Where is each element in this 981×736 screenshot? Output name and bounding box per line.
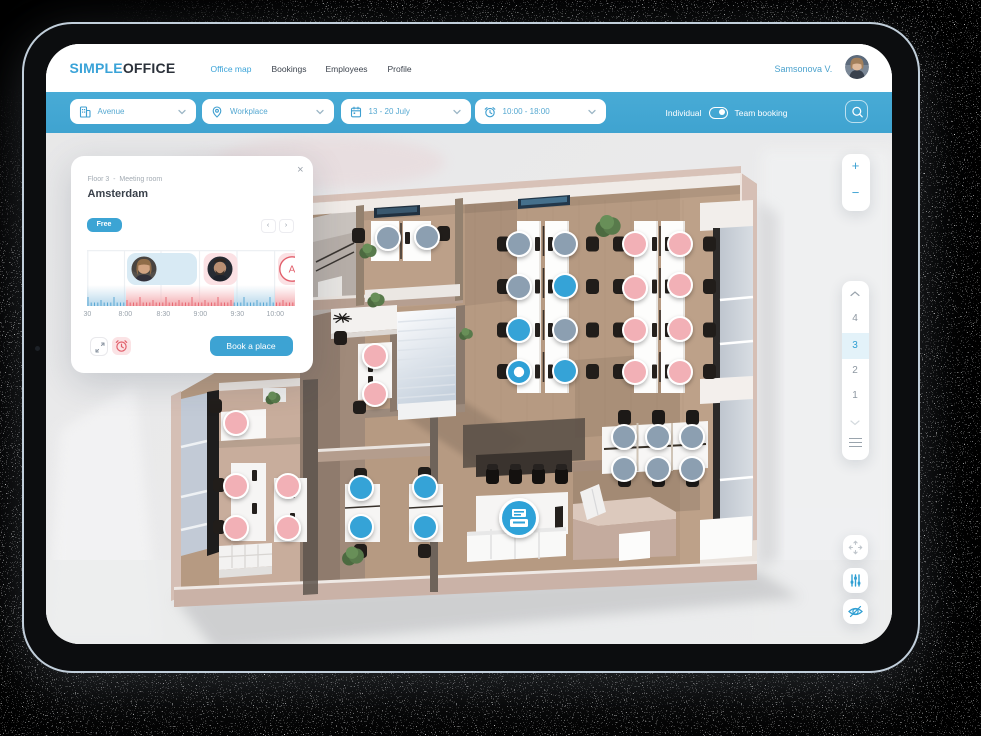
svg-text:A: A bbox=[288, 264, 294, 275]
